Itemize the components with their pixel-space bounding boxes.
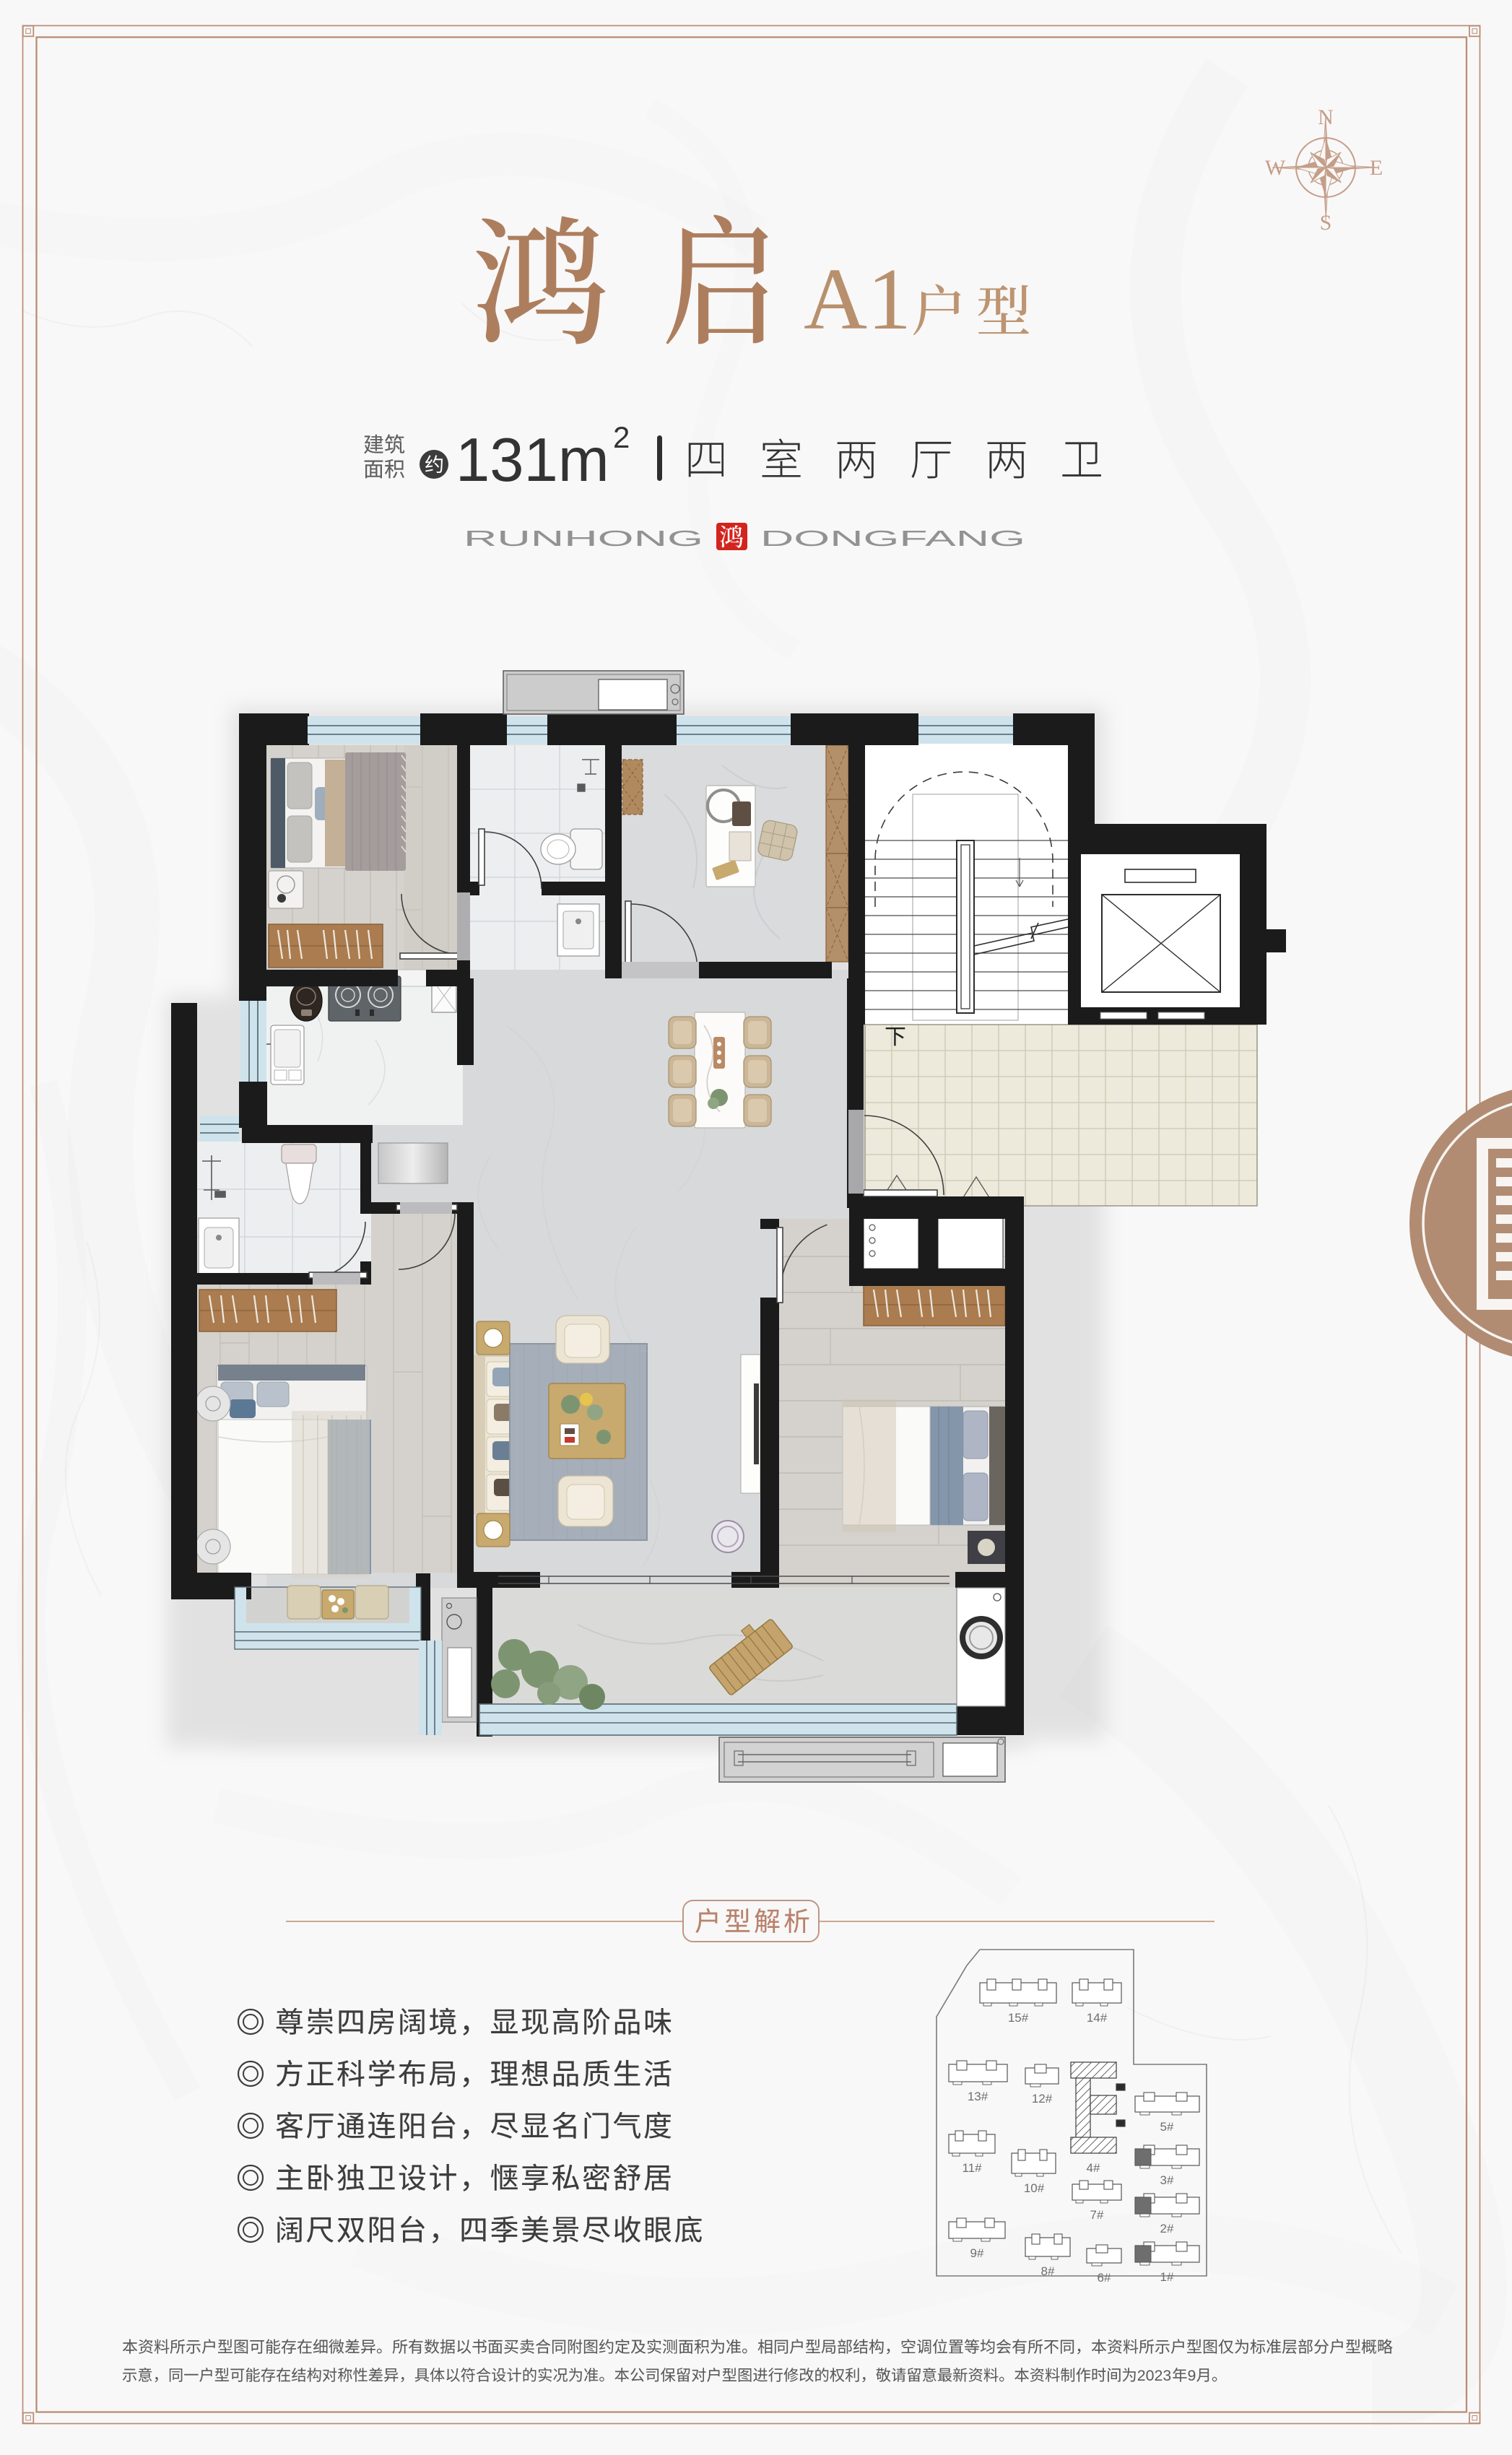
- svg-text:E: E: [1370, 156, 1383, 180]
- svg-text:RUNHONG: RUNHONG: [464, 526, 703, 551]
- svg-text:9#: 9#: [970, 2246, 984, 2260]
- svg-text:2#: 2#: [1160, 2222, 1174, 2235]
- svg-text:8#: 8#: [1041, 2264, 1055, 2278]
- svg-text:131m: 131m: [456, 426, 609, 495]
- svg-text:12#: 12#: [1032, 2092, 1053, 2106]
- svg-text:9: 9: [1188, 2367, 1196, 2384]
- svg-text:3#: 3#: [1160, 2173, 1174, 2187]
- svg-text:7#: 7#: [1090, 2208, 1104, 2222]
- svg-text:13#: 13#: [968, 2090, 989, 2103]
- svg-text:N: N: [1318, 105, 1334, 129]
- svg-text:11#: 11#: [962, 2161, 982, 2175]
- svg-text:14#: 14#: [1087, 2011, 1108, 2025]
- svg-text:1#: 1#: [1160, 2270, 1174, 2284]
- svg-text:A1: A1: [804, 251, 911, 348]
- svg-text:15#: 15#: [1008, 2011, 1029, 2025]
- svg-text:W: W: [1265, 156, 1286, 180]
- svg-text:10#: 10#: [1024, 2181, 1045, 2195]
- svg-text:2: 2: [613, 420, 630, 454]
- svg-text:S: S: [1320, 211, 1332, 235]
- svg-text:5#: 5#: [1160, 2120, 1174, 2134]
- svg-text:DONGFANG: DONGFANG: [760, 526, 1025, 551]
- svg-text:2023: 2023: [1137, 2367, 1171, 2384]
- svg-text:6#: 6#: [1098, 2271, 1111, 2285]
- svg-text:4#: 4#: [1087, 2161, 1100, 2175]
